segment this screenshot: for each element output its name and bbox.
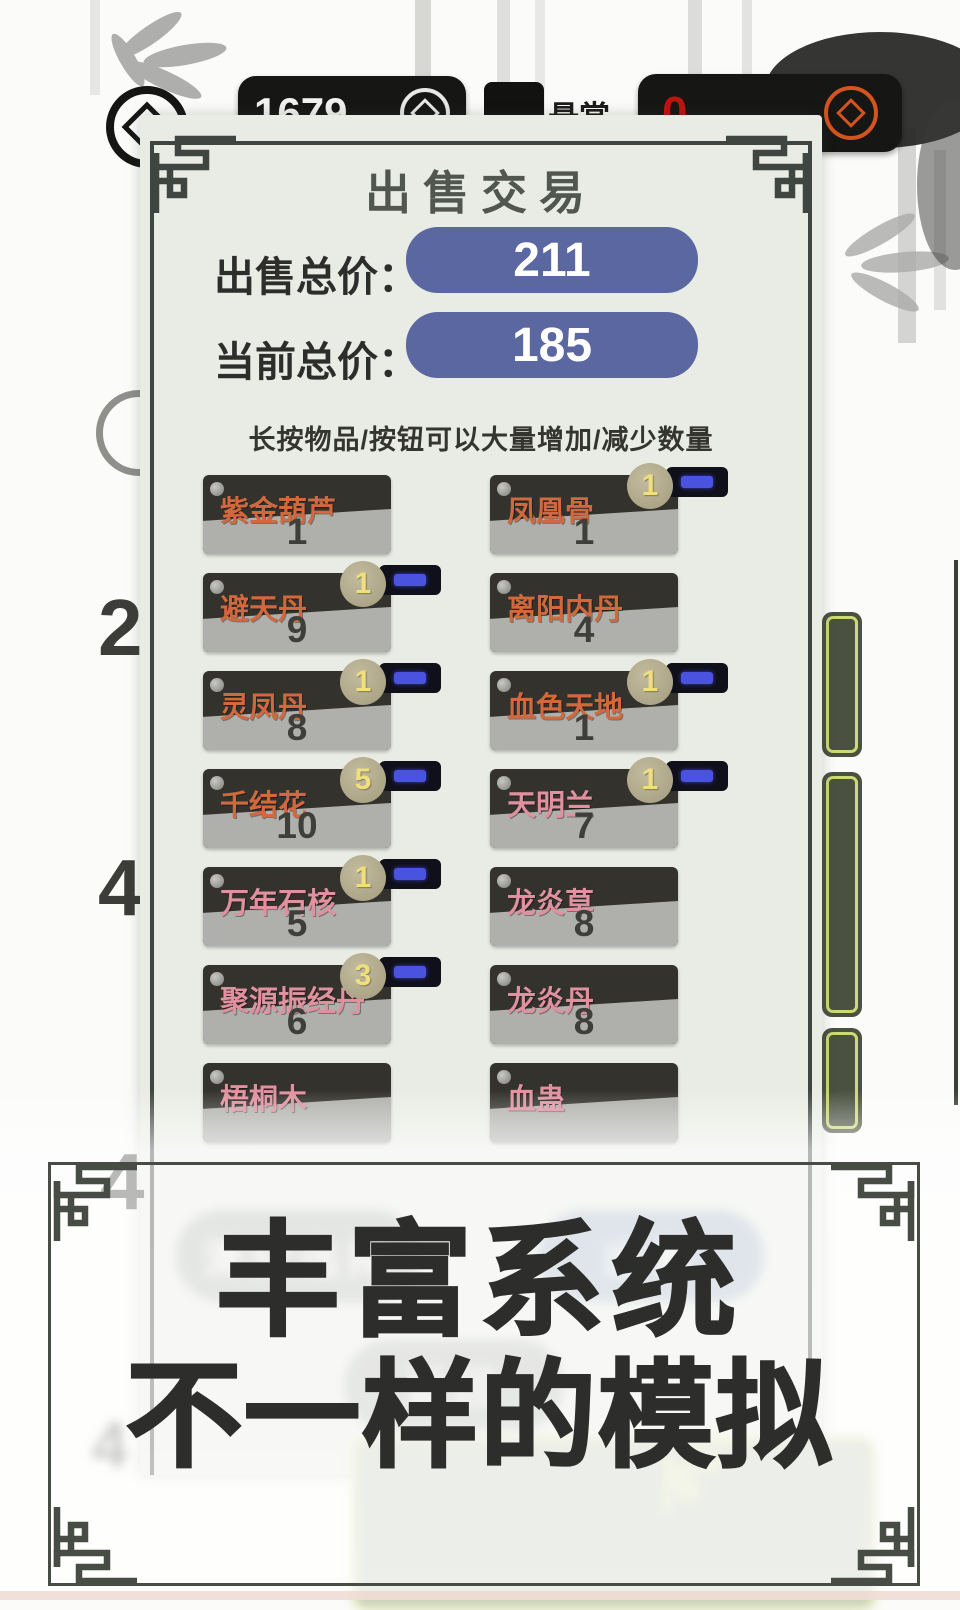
corner-fret-ornament xyxy=(45,1507,137,1591)
bottom-edge-strip xyxy=(0,1591,960,1600)
slogan-line-2: 不一样的模拟 xyxy=(0,1352,960,1482)
promo-slogan: 丰富系统 不一样的模拟 xyxy=(0,1213,960,1482)
game-screen: 2 4 4 1679 悬赏 0 出售交易 出售总价： 211 当前总价： 185… xyxy=(0,0,960,1600)
slogan-line-1: 丰富系统 xyxy=(0,1213,960,1352)
corner-fret-ornament xyxy=(831,1507,923,1591)
